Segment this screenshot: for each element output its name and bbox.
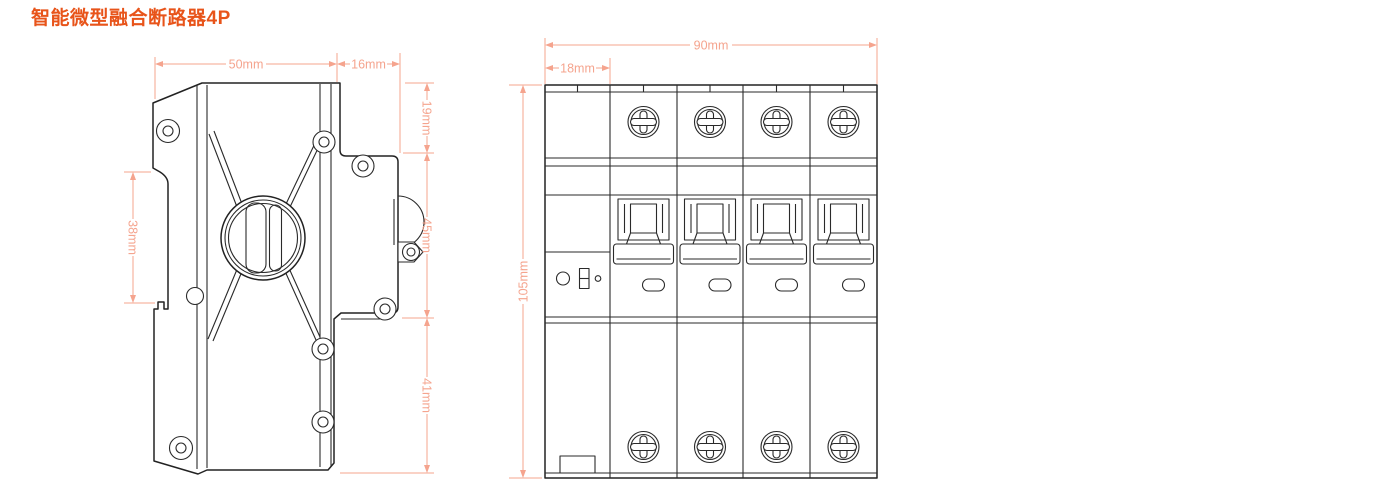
dim-label-total-height: 105mm	[517, 261, 531, 303]
screw-hole	[312, 411, 334, 433]
pin-hole	[187, 288, 204, 305]
screw-hole	[403, 244, 420, 261]
page-title: 智能微型融合断路器4P	[31, 3, 231, 30]
dim-label-ext-width: 16mm	[351, 58, 386, 72]
dim-total-height: 105mm	[517, 85, 531, 478]
dim-total-width: 90mm	[545, 39, 877, 53]
terminal-screw	[628, 432, 659, 463]
terminal-screw	[761, 432, 792, 463]
dim-label-upper-height: 19mm	[420, 101, 434, 136]
terminal-screw	[828, 107, 859, 138]
screw-hole	[157, 120, 180, 143]
rail-release-notch	[560, 456, 595, 473]
screw-hole	[170, 437, 193, 460]
dim-label-top-width: 50mm	[229, 58, 264, 72]
screw-hole	[374, 298, 396, 320]
screw-hole	[313, 131, 335, 153]
dim-label-total-width: 90mm	[694, 39, 729, 53]
terminal-screw	[828, 432, 859, 463]
screw-hole	[352, 155, 374, 177]
rotary-knob	[221, 196, 305, 280]
front-view-drawing: 90mm 18mm 105mm	[490, 30, 890, 480]
terminal-screw	[695, 107, 726, 138]
terminal-screw	[761, 107, 792, 138]
dim-label-lower-height: 41mm	[420, 378, 434, 413]
dim-label-rail-slot-height: 38mm	[126, 220, 140, 255]
dim-label-middle-height: 45mm	[420, 218, 434, 253]
dim-top-width: 50mm	[155, 58, 337, 72]
screw-hole	[312, 338, 334, 360]
page: 智能微型融合断路器4P	[0, 0, 1400, 480]
terminal-screw	[695, 432, 726, 463]
dim-rail-slot-height: 38mm	[126, 172, 140, 303]
dim-middle-height: 45mm	[420, 153, 434, 318]
terminal-screw	[628, 107, 659, 138]
side-view-drawing: 50mm 16mm 19mm 45mm 41mm	[115, 40, 450, 480]
dim-ext-width: 16mm	[337, 58, 400, 72]
dim-pole-width: 18mm	[545, 62, 610, 76]
dim-upper-height: 19mm	[420, 83, 434, 153]
dim-label-pole-width: 18mm	[560, 62, 595, 76]
dim-lower-height: 41mm	[420, 318, 434, 473]
